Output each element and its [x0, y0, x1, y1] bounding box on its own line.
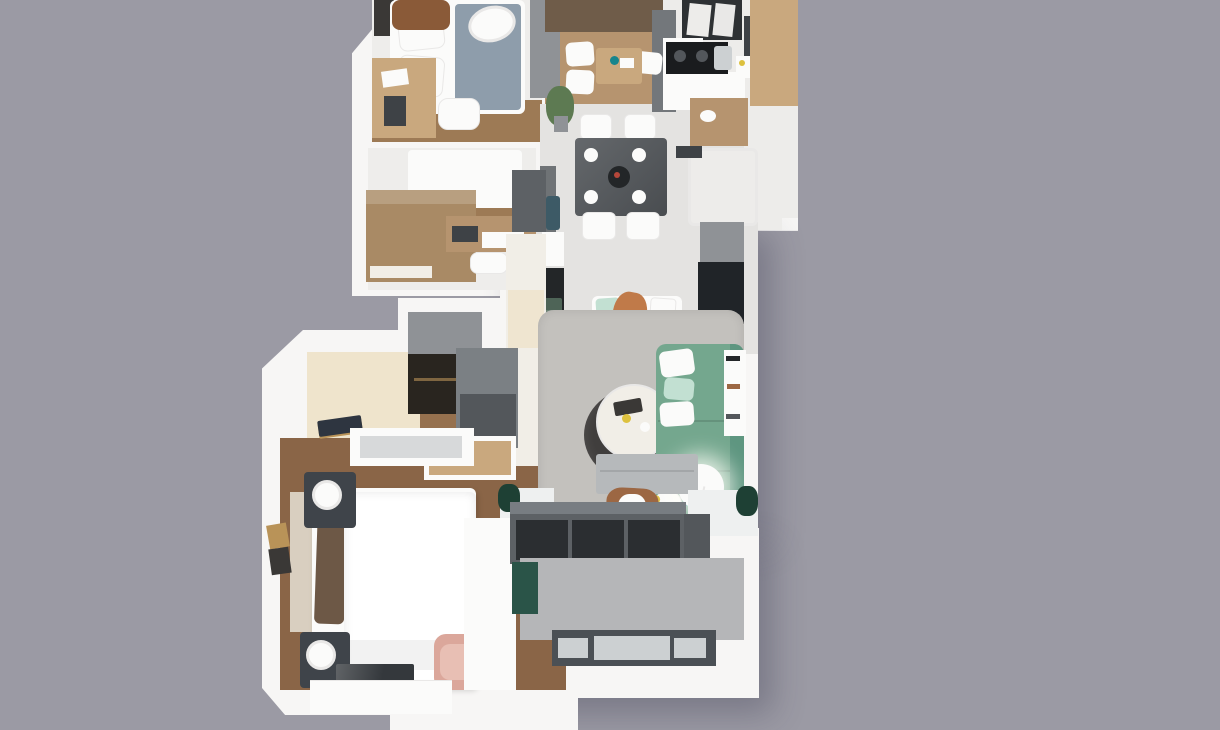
- corner-plant: [736, 486, 758, 516]
- plate: [584, 148, 598, 162]
- study-desk-slot: [452, 226, 478, 242]
- plant-pot: [554, 116, 568, 132]
- radiator-core: [360, 436, 462, 458]
- shower-tub: [688, 148, 758, 226]
- door-frame-end: [684, 514, 710, 558]
- sofa-pillow-patterned: [659, 401, 695, 427]
- balcony-green-towel: [512, 562, 538, 614]
- small-bedroom-chair: [438, 98, 480, 130]
- shelf-books: [726, 356, 740, 361]
- railing-panel: [674, 638, 706, 658]
- bowl-accent: [614, 172, 620, 178]
- tv-bench-seam: [600, 470, 694, 472]
- sliding-door-glass: [628, 520, 680, 560]
- dining-chair: [624, 114, 656, 140]
- bath-vanity: [690, 98, 748, 146]
- desk-tablet: [384, 96, 406, 126]
- kitchen-wood-cabinets: [750, 0, 798, 106]
- plate: [632, 190, 646, 204]
- tall-cabinet-gray: [700, 222, 744, 264]
- tea-tray: [620, 58, 634, 68]
- bath-fixture: [676, 146, 702, 158]
- bath-basin: [700, 110, 716, 122]
- table-cup: [640, 422, 650, 432]
- table-lamp: [312, 480, 342, 510]
- dining-chair: [582, 212, 616, 240]
- window-pane: [712, 3, 735, 37]
- wall-frame-gold: [266, 522, 290, 549]
- lounge-curtains: [545, 0, 663, 32]
- sliding-door-glass: [516, 520, 568, 560]
- dining-chair: [626, 212, 660, 240]
- sofa-pillow-mint: [663, 377, 695, 402]
- floor-plan-canvas: [0, 0, 1220, 730]
- dining-chair: [580, 114, 612, 140]
- kitchen-sink: [714, 46, 732, 70]
- railing-panel: [558, 638, 588, 658]
- window-pane: [686, 3, 711, 37]
- sofa-pillow-white: [658, 348, 695, 378]
- plate: [632, 148, 646, 162]
- leather-armchair: [392, 0, 450, 30]
- burner: [696, 50, 708, 62]
- study-chair: [470, 252, 508, 274]
- table-lamp: [306, 640, 336, 670]
- study-wardrobe-top-strip: [366, 190, 476, 204]
- figurine: [546, 196, 560, 230]
- study-wardrobe-slats: [370, 266, 432, 278]
- railing-panel: [594, 636, 670, 660]
- teal-vase: [610, 56, 619, 65]
- balcony-floor: [520, 558, 744, 640]
- wall-frame-dark: [268, 547, 291, 576]
- floor-cushion: [565, 41, 595, 67]
- low-tea-table: [596, 48, 642, 84]
- tv-bench: [596, 454, 698, 494]
- lemon-accent: [739, 60, 745, 66]
- plate: [584, 190, 598, 204]
- shelf-books: [727, 384, 740, 389]
- burner: [674, 50, 686, 62]
- bedroom-desk: [464, 518, 516, 690]
- wall-shelves: [724, 350, 746, 436]
- shelf-books: [726, 414, 740, 419]
- table-lemon: [622, 414, 631, 423]
- white-dresser: [310, 680, 452, 714]
- living-partition-dark: [512, 170, 546, 232]
- sliding-door-glass: [572, 520, 624, 560]
